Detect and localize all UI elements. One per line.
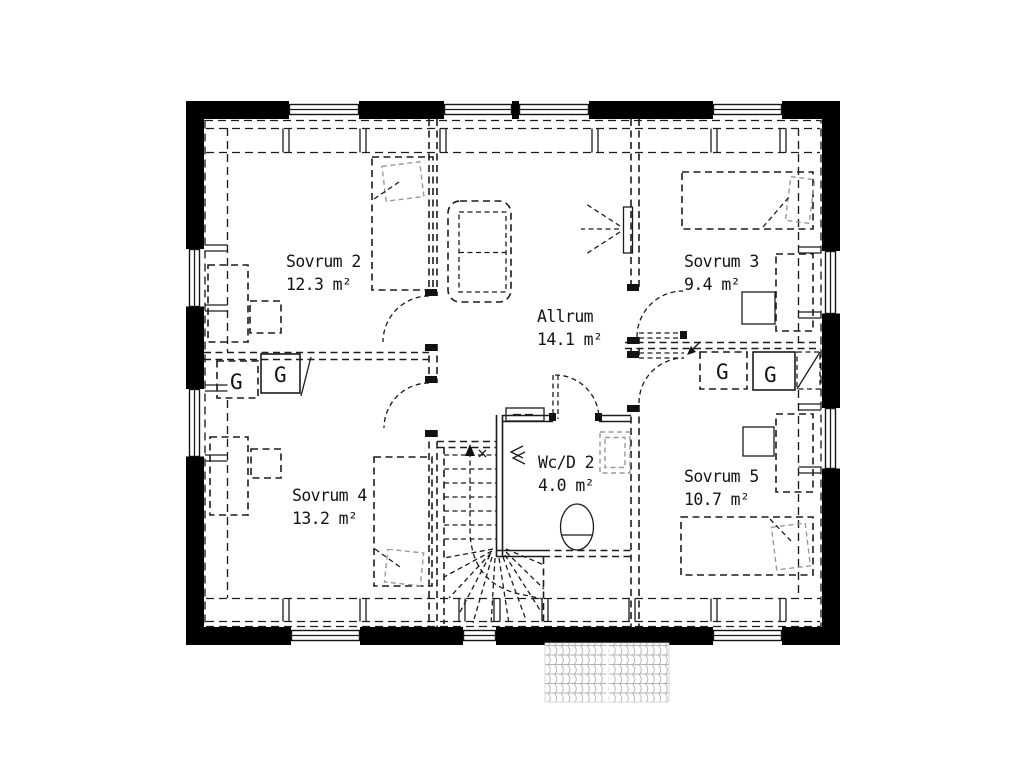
window-bottom-2 (460, 627, 500, 645)
window-top-1 (286, 101, 363, 119)
roof-tile-hatch (545, 643, 669, 702)
room-label-sovrum2: Sovrum 2 (286, 252, 361, 271)
room-area-sovrum4: 13.2 m² (292, 509, 357, 528)
room-label-sovrum4: Sovrum 4 (292, 486, 367, 505)
washbasin-icon (600, 432, 630, 473)
radiator-icon (506, 408, 544, 421)
pillow (785, 177, 814, 224)
window-right-2 (822, 405, 840, 473)
furniture-allrum (448, 201, 511, 302)
desk (776, 414, 813, 492)
room-label-allrum: Allrum (537, 307, 594, 326)
pillow (382, 162, 424, 201)
room-labels: Sovrum 2 12.3 m² Sovrum 3 9.4 m² Allrum … (230, 252, 777, 528)
chair (743, 427, 774, 456)
bed (372, 157, 433, 290)
pillow (384, 549, 423, 586)
room-area-sovrum2: 12.3 m² (286, 275, 351, 294)
room-area-wcd2: 4.0 m² (538, 476, 594, 495)
pillow (771, 523, 810, 570)
door-arc-sovrum4 (384, 383, 429, 428)
door-arc-sovrum2 (383, 296, 429, 342)
bed (681, 517, 813, 575)
bed (374, 457, 432, 586)
chair (251, 449, 281, 478)
wall-light-rays-icon (581, 204, 633, 254)
door-arc-sovrum3 (637, 291, 683, 337)
window-bottom-1 (288, 627, 364, 645)
window-top-3 (516, 101, 593, 119)
closets (217, 352, 820, 398)
door-arc-wc (555, 375, 599, 419)
room-area-sovrum5: 10.7 m² (684, 490, 749, 509)
door-leaf-sovrum3 (639, 333, 684, 338)
desk (210, 437, 248, 515)
window-right-1 (822, 248, 840, 318)
closet-label-g2: G (274, 363, 287, 387)
window-left-2 (186, 386, 204, 461)
room-label-wcd2: Wc/D 2 (538, 453, 594, 472)
room-label-sovrum5: Sovrum 5 (684, 467, 759, 486)
chair (742, 292, 775, 324)
door-leaf-sovrum5 (639, 353, 684, 358)
closet-label-g1: G (230, 370, 243, 394)
toilet-icon (561, 504, 594, 550)
window-left-1 (186, 246, 204, 311)
floor-plan-drawing: Sovrum 2 12.3 m² Sovrum 3 9.4 m² Allrum … (0, 0, 1024, 768)
bed (682, 172, 813, 229)
chair (250, 301, 281, 333)
room-area-sovrum3: 9.4 m² (684, 275, 740, 294)
window-top-4 (710, 101, 786, 119)
sofa (448, 201, 511, 302)
window-bottom-3 (710, 627, 786, 645)
window-top-2 (441, 101, 516, 119)
furniture-sovrum2 (208, 157, 433, 342)
stair-direction-arrow (465, 444, 475, 456)
closet-label-g4: G (764, 363, 777, 387)
door-leaf-wc (553, 375, 558, 419)
vent-arrows-icon (511, 446, 525, 464)
floor-plan-page: Sovrum 2 12.3 m² Sovrum 3 9.4 m² Allrum … (0, 0, 1024, 768)
door-arc-sovrum5 (639, 358, 684, 403)
desk (776, 254, 813, 331)
room-area-allrum: 14.1 m² (537, 330, 602, 349)
room-label-sovrum3: Sovrum 3 (684, 252, 759, 271)
closet-label-g3: G (716, 360, 729, 384)
staircase (437, 415, 544, 625)
